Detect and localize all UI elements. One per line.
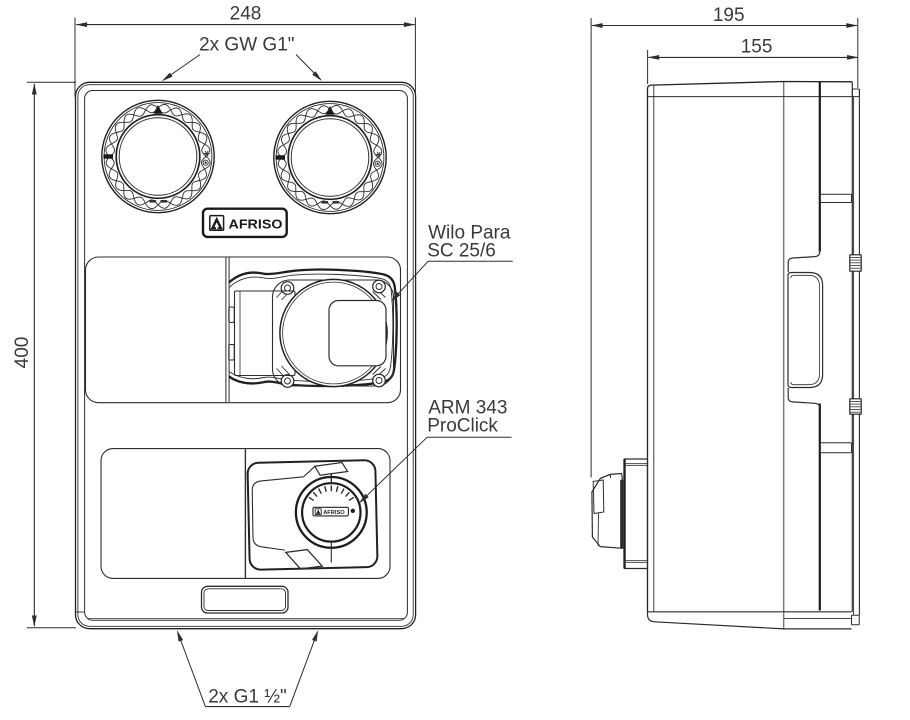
svg-text:SC 25/6: SC 25/6 <box>427 241 496 262</box>
svg-text:195: 195 <box>713 5 745 26</box>
svg-text:400: 400 <box>12 337 33 369</box>
svg-text:248: 248 <box>230 4 262 25</box>
svg-text:AFRISO: AFRISO <box>323 510 345 516</box>
svg-text:ProClick: ProClick <box>427 416 498 437</box>
svg-text:2x GW G1": 2x GW G1" <box>199 35 294 56</box>
svg-text:155: 155 <box>741 37 773 58</box>
svg-text:AFRISO: AFRISO <box>229 217 283 231</box>
svg-text:2x G1 ½": 2x G1 ½" <box>208 687 287 708</box>
